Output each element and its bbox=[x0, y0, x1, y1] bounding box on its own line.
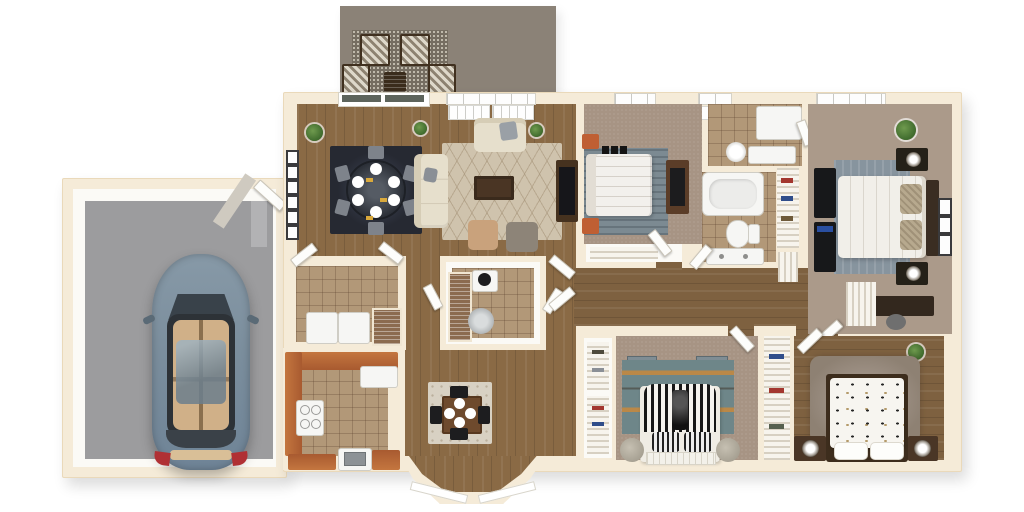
bedroom2-bed bbox=[586, 154, 652, 216]
clothes-item bbox=[592, 368, 604, 372]
car-taillight bbox=[231, 451, 249, 466]
car-roof-glass bbox=[176, 340, 226, 404]
faucet bbox=[719, 254, 724, 259]
sofa bbox=[414, 154, 448, 228]
car bbox=[152, 254, 250, 470]
bathtub bbox=[702, 172, 764, 216]
coffee-table bbox=[474, 176, 514, 200]
hall-linen-closet bbox=[778, 252, 798, 282]
clothes-item bbox=[592, 350, 604, 354]
plant bbox=[530, 124, 543, 137]
pillow bbox=[834, 442, 868, 460]
sink-basin bbox=[344, 452, 366, 466]
plate bbox=[388, 194, 400, 206]
slider-glass bbox=[385, 95, 424, 102]
driveway-seam bbox=[251, 201, 267, 247]
burner bbox=[311, 419, 321, 429]
dryer bbox=[338, 312, 370, 344]
master-pillow bbox=[900, 184, 922, 214]
desk-chair bbox=[886, 314, 906, 330]
tub-basin bbox=[709, 179, 757, 209]
wall-art bbox=[938, 234, 952, 256]
pantry-louver-door bbox=[372, 308, 402, 346]
toilet-tank bbox=[748, 224, 760, 244]
wall-art bbox=[938, 198, 952, 216]
clothes-item bbox=[592, 406, 604, 410]
closet-wire-shelf bbox=[590, 247, 658, 259]
clothes-item bbox=[769, 354, 784, 359]
plant bbox=[306, 124, 323, 141]
ottoman bbox=[506, 222, 538, 252]
lamp bbox=[906, 152, 921, 167]
vanity-counter bbox=[748, 146, 796, 164]
plate bbox=[388, 176, 400, 188]
patio-table bbox=[384, 72, 406, 92]
wall-art bbox=[286, 195, 299, 210]
master-closet bbox=[846, 282, 876, 326]
nightstand-orange bbox=[582, 134, 599, 149]
window bbox=[446, 93, 536, 105]
faucet bbox=[743, 254, 748, 259]
kitchen bbox=[283, 348, 405, 470]
pouf bbox=[620, 438, 644, 462]
pedestal-sink bbox=[468, 308, 494, 334]
toilet-lid bbox=[478, 273, 491, 286]
burner bbox=[311, 405, 321, 415]
clothes-item bbox=[781, 178, 793, 183]
car-trunk-accent bbox=[170, 450, 232, 460]
car-taillight bbox=[153, 451, 171, 466]
nightstand-orange bbox=[582, 218, 599, 234]
plate bbox=[370, 163, 382, 175]
tv bbox=[559, 167, 575, 215]
refrigerator bbox=[360, 366, 398, 388]
wall-art bbox=[286, 165, 299, 180]
dining-chair bbox=[368, 146, 384, 159]
lamp bbox=[906, 266, 921, 281]
nook-chair bbox=[450, 428, 468, 440]
striped-pillow bbox=[652, 432, 680, 452]
plate bbox=[454, 417, 465, 428]
lamp bbox=[914, 440, 931, 457]
dining-chair bbox=[368, 222, 384, 235]
loveseat-throw bbox=[499, 121, 518, 141]
floor-plan-render bbox=[0, 0, 1024, 512]
laundry-room bbox=[288, 256, 406, 350]
master-pillow bbox=[900, 220, 922, 250]
master-desk bbox=[866, 296, 934, 316]
wall-decor bbox=[620, 146, 627, 154]
nook-chair bbox=[450, 386, 468, 398]
toilet bbox=[726, 220, 750, 248]
patio-chair bbox=[400, 34, 430, 66]
master-dresser bbox=[814, 168, 836, 218]
counter-bottom bbox=[288, 454, 336, 470]
ottoman bbox=[468, 220, 498, 250]
plate bbox=[352, 176, 364, 188]
washer bbox=[306, 312, 338, 344]
utility-louver-door bbox=[448, 272, 472, 342]
nook-chair bbox=[478, 406, 490, 424]
wall-art bbox=[286, 225, 299, 240]
plate bbox=[352, 194, 364, 206]
slider-glass bbox=[342, 95, 381, 102]
napkin bbox=[366, 178, 373, 182]
plant bbox=[414, 122, 427, 135]
patio bbox=[340, 6, 556, 98]
sofa-pillow bbox=[423, 167, 438, 183]
wall-decor bbox=[602, 146, 609, 154]
clothes-item bbox=[769, 424, 784, 429]
hall-bath-vanity bbox=[706, 248, 764, 265]
clothes-item bbox=[769, 388, 784, 393]
plate bbox=[454, 398, 465, 409]
patio-chair bbox=[342, 64, 370, 94]
dresser-accent bbox=[817, 226, 833, 232]
closet-wire-shelf bbox=[587, 396, 609, 454]
napkin bbox=[366, 216, 373, 220]
burner bbox=[300, 405, 310, 415]
patio-chair bbox=[428, 64, 456, 94]
lamp bbox=[802, 440, 819, 457]
striped-pillow bbox=[684, 432, 712, 452]
bedroom3-footboard bbox=[646, 452, 716, 465]
plant bbox=[896, 120, 916, 140]
round-sink bbox=[726, 142, 746, 162]
range-stove bbox=[296, 400, 324, 436]
powder-room bbox=[440, 256, 546, 350]
bedroom2-tv bbox=[670, 168, 685, 206]
nook-chair bbox=[430, 406, 442, 424]
clothes-item bbox=[781, 196, 793, 201]
polka-dot-duvet bbox=[830, 378, 904, 448]
wall-decor bbox=[611, 146, 618, 154]
pouf bbox=[716, 438, 740, 462]
plate bbox=[465, 408, 476, 419]
plate bbox=[444, 408, 455, 419]
wall-art bbox=[286, 210, 299, 225]
wall-art bbox=[286, 150, 299, 165]
burner bbox=[300, 419, 310, 429]
clothes-item bbox=[592, 422, 604, 426]
bedroom4-closet bbox=[764, 336, 790, 460]
sliding-patio-door bbox=[338, 92, 430, 107]
car-rear-window bbox=[166, 430, 236, 448]
closet-wire-shelf bbox=[587, 342, 609, 390]
linen-closet bbox=[777, 168, 799, 248]
clothes-item bbox=[781, 216, 793, 221]
kitchen-island bbox=[372, 450, 400, 470]
napkin bbox=[380, 198, 387, 202]
drape-center bbox=[672, 390, 688, 430]
patio-chair bbox=[360, 34, 390, 66]
wall-art bbox=[286, 180, 299, 195]
wall-art bbox=[938, 216, 952, 234]
pillow bbox=[870, 442, 904, 460]
